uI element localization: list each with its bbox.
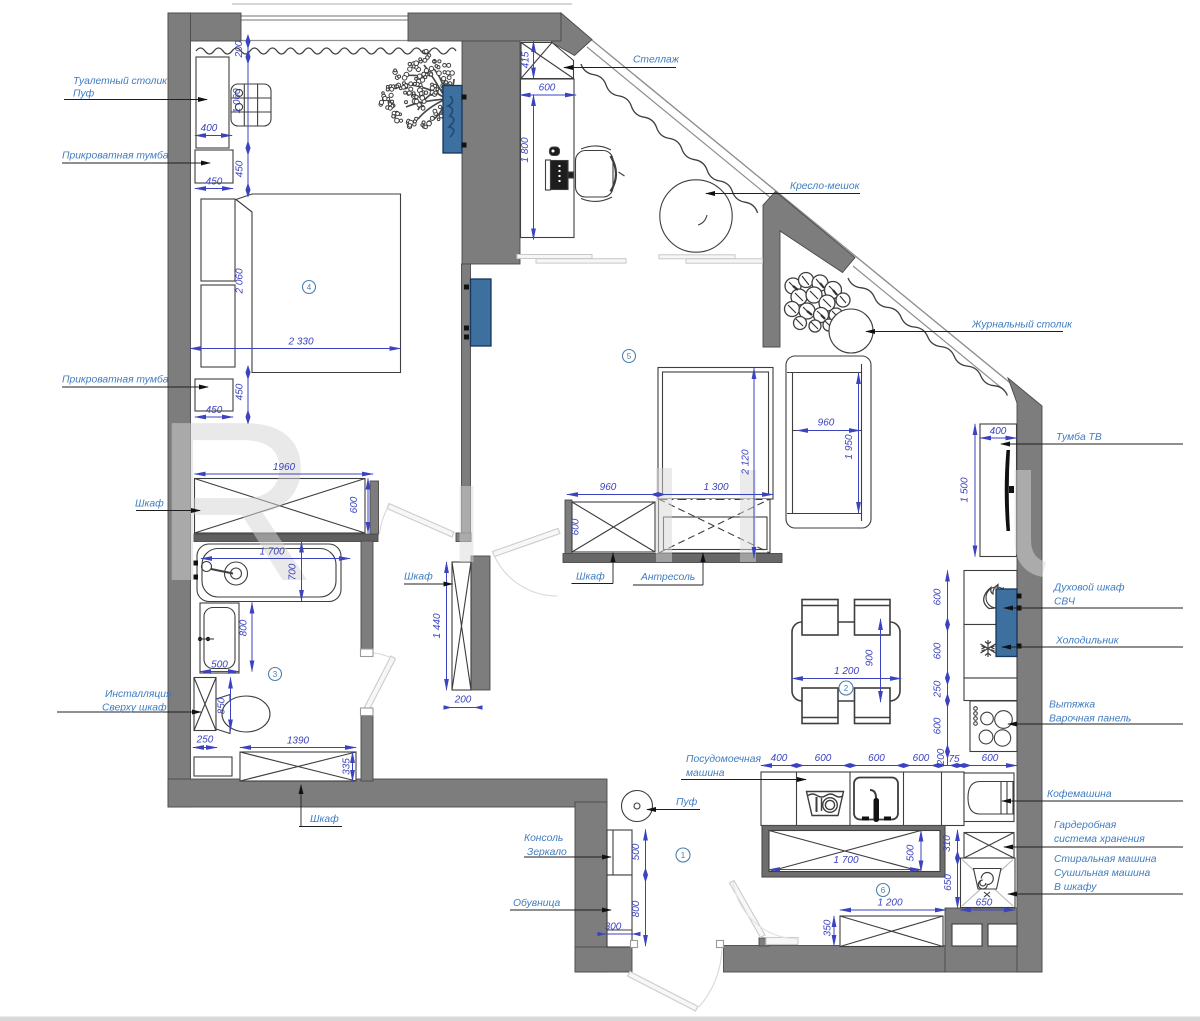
svg-text:250: 250 [933, 680, 944, 698]
svg-text:415: 415 [521, 51, 532, 68]
svg-text:Стиральная машина: Стиральная машина [1054, 854, 1157, 865]
svg-text:СВЧ: СВЧ [1054, 597, 1075, 608]
svg-text:600: 600 [933, 588, 944, 605]
svg-text:450: 450 [235, 160, 246, 177]
svg-text:450: 450 [206, 177, 223, 188]
svg-text:система хранения: система хранения [1054, 834, 1145, 845]
svg-text:960: 960 [600, 482, 617, 493]
svg-text:1 060: 1 060 [232, 88, 243, 113]
svg-text:Стеллаж: Стеллаж [633, 55, 680, 66]
svg-text:650: 650 [943, 874, 954, 891]
svg-text:Обувница: Обувница [513, 897, 560, 909]
svg-text:Туалетный столик: Туалетный столик [73, 76, 168, 87]
svg-text:1 200: 1 200 [877, 898, 902, 909]
svg-text:400: 400 [771, 753, 788, 764]
svg-text:200: 200 [454, 695, 472, 706]
svg-text:Сверху шкаф: Сверху шкаф [102, 702, 167, 714]
svg-text:Сушильная машина: Сушильная машина [1054, 868, 1150, 879]
svg-text:1390: 1390 [287, 736, 310, 747]
svg-text:900: 900 [865, 649, 876, 666]
svg-text:Журнальный столик: Журнальный столик [971, 320, 1073, 331]
svg-text:350: 350 [823, 919, 834, 936]
svg-text:335: 335 [342, 758, 353, 775]
svg-text:1: 1 [681, 851, 686, 860]
svg-text:600: 600 [913, 753, 930, 764]
svg-text:1 950: 1 950 [844, 434, 855, 459]
svg-text:1960: 1960 [273, 462, 296, 473]
svg-text:1 700: 1 700 [259, 547, 284, 558]
svg-text:Шкаф: Шкаф [404, 571, 433, 583]
svg-text:R: R [153, 375, 318, 629]
svg-text:700: 700 [288, 563, 299, 580]
svg-text:800: 800 [631, 900, 642, 917]
svg-text:450: 450 [206, 405, 223, 416]
svg-text:600: 600 [933, 642, 944, 659]
svg-text:2 060: 2 060 [235, 268, 246, 294]
svg-text:500: 500 [631, 843, 642, 860]
svg-text:1 700: 1 700 [833, 855, 858, 866]
svg-text:400: 400 [201, 123, 218, 134]
svg-text:450: 450 [235, 383, 246, 400]
svg-text:2 120: 2 120 [741, 449, 752, 475]
svg-text:Гардеробная: Гардеробная [1054, 819, 1117, 831]
svg-text:Зеркало: Зеркало [527, 847, 567, 858]
svg-text:Духовой шкаф: Духовой шкаф [1053, 582, 1125, 594]
svg-text:600: 600 [349, 496, 360, 513]
svg-text:600: 600 [982, 753, 999, 764]
svg-text:300: 300 [605, 922, 622, 933]
svg-text:600: 600 [815, 753, 832, 764]
svg-text:машина: машина [686, 768, 725, 779]
svg-text:Посудомоечная: Посудомоечная [686, 754, 761, 765]
svg-text:600: 600 [539, 83, 556, 94]
svg-text:310: 310 [942, 835, 953, 852]
svg-text:Антресоль: Антресоль [640, 572, 695, 583]
svg-text:2 330: 2 330 [287, 337, 313, 348]
svg-text:Шкаф: Шкаф [310, 813, 339, 825]
svg-text:1 440: 1 440 [432, 613, 443, 638]
svg-text:1 500: 1 500 [960, 477, 971, 502]
svg-text:600: 600 [868, 753, 885, 764]
svg-text:2: 2 [844, 684, 849, 693]
svg-text:500: 500 [211, 660, 228, 671]
svg-text:Пуф: Пуф [73, 88, 95, 100]
svg-text:5: 5 [627, 352, 632, 361]
svg-text:1 800: 1 800 [520, 137, 531, 162]
svg-text:Кофемашина: Кофемашина [1047, 788, 1112, 800]
svg-text:Варочная панель: Варочная панель [1049, 714, 1131, 725]
svg-text:Кресло-мешок: Кресло-мешок [790, 181, 861, 192]
svg-text:650: 650 [976, 898, 993, 909]
svg-text:200: 200 [234, 40, 245, 58]
svg-text:4: 4 [307, 283, 312, 292]
svg-text:Прикроватная тумба: Прикроватная тумба [62, 150, 169, 162]
svg-text:Вытяжка: Вытяжка [1049, 700, 1095, 711]
svg-text:3: 3 [273, 670, 278, 679]
svg-text:1 200: 1 200 [834, 666, 859, 677]
svg-text:В шкафу: В шкафу [1054, 881, 1097, 893]
svg-text:850: 850 [217, 697, 228, 714]
svg-text:800: 800 [239, 619, 250, 636]
svg-text:Пуф: Пуф [676, 796, 698, 808]
svg-text:75: 75 [948, 754, 960, 765]
svg-text:960: 960 [818, 418, 835, 429]
svg-text:Шкаф: Шкаф [135, 498, 164, 510]
svg-text:400: 400 [990, 426, 1007, 437]
svg-text:500: 500 [906, 844, 917, 861]
svg-text:Тумба ТВ: Тумба ТВ [1056, 431, 1102, 443]
svg-text:Прикроватная тумба: Прикроватная тумба [62, 374, 169, 386]
svg-text:600: 600 [571, 518, 582, 535]
svg-text:6: 6 [881, 886, 886, 895]
svg-text:Консоль: Консоль [524, 833, 563, 844]
svg-text:200: 200 [936, 748, 947, 766]
svg-text:Шкаф: Шкаф [576, 571, 605, 583]
svg-text:Холодильник: Холодильник [1055, 636, 1120, 647]
svg-text:600: 600 [933, 717, 944, 734]
svg-text:1 300: 1 300 [703, 482, 728, 493]
svg-text:Инсталляция: Инсталляция [105, 689, 172, 700]
svg-text:250: 250 [196, 735, 214, 746]
